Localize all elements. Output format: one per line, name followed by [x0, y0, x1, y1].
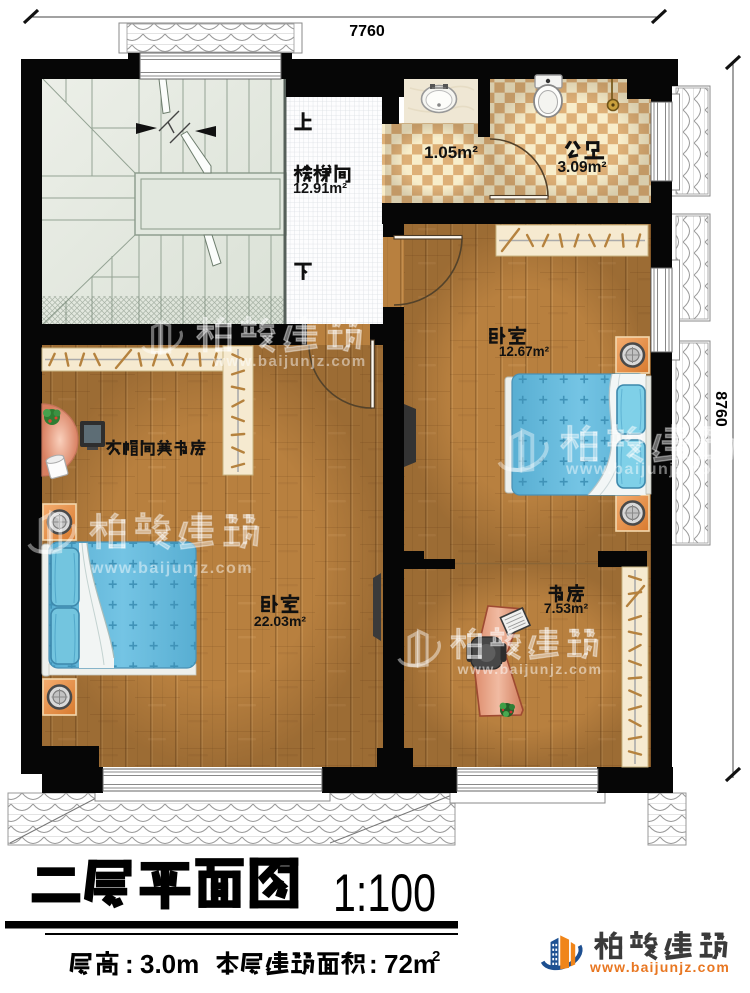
svg-text:www.baijunjz.com: www.baijunjz.com	[90, 560, 253, 577]
svg-text:22.03m²: 22.03m²	[254, 613, 306, 629]
svg-text:1:100: 1:100	[333, 864, 436, 923]
svg-text:12.91m²: 12.91m²	[293, 181, 347, 197]
svg-text:www.baijunjz.com: www.baijunjz.com	[589, 959, 730, 975]
svg-text:3.0m: 3.0m	[140, 949, 199, 979]
svg-text:www.baijunjz.com: www.baijunjz.com	[457, 661, 603, 677]
svg-text:www.baijunjz.com: www.baijunjz.com	[212, 353, 366, 370]
svg-text:2: 2	[432, 948, 440, 965]
svg-text:1.05m²: 1.05m²	[424, 143, 478, 162]
svg-text::: :	[369, 949, 378, 979]
svg-text:3.09m²: 3.09m²	[557, 159, 606, 176]
svg-text::: :	[125, 949, 134, 979]
svg-text:8760: 8760	[712, 391, 729, 427]
svg-text:7760: 7760	[349, 23, 385, 40]
svg-text:72m: 72m	[384, 949, 436, 979]
svg-text:www.baijunjz.com: www.baijunjz.com	[565, 461, 728, 478]
svg-text:12.67m²: 12.67m²	[499, 344, 550, 359]
svg-text:7.53m²: 7.53m²	[544, 600, 589, 616]
